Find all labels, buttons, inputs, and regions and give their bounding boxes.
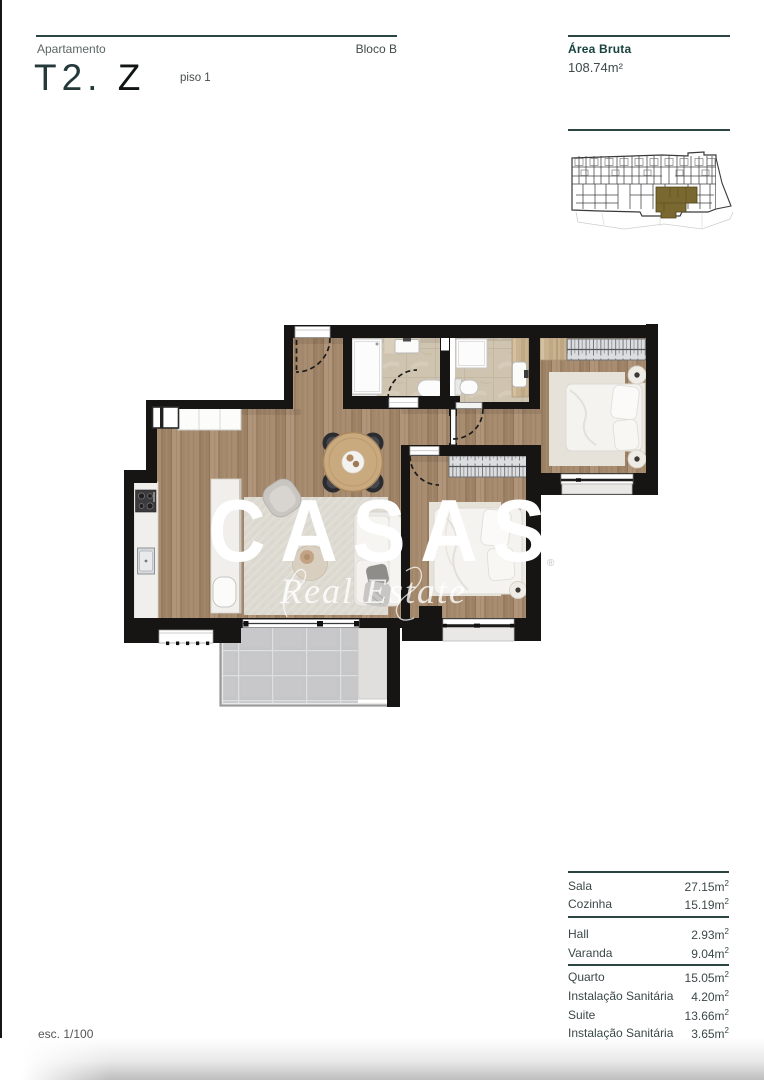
svg-text:CASAS: CASAS: [208, 481, 560, 580]
svg-text:®: ®: [547, 558, 555, 569]
svg-text:Real Estate: Real Estate: [279, 571, 467, 611]
